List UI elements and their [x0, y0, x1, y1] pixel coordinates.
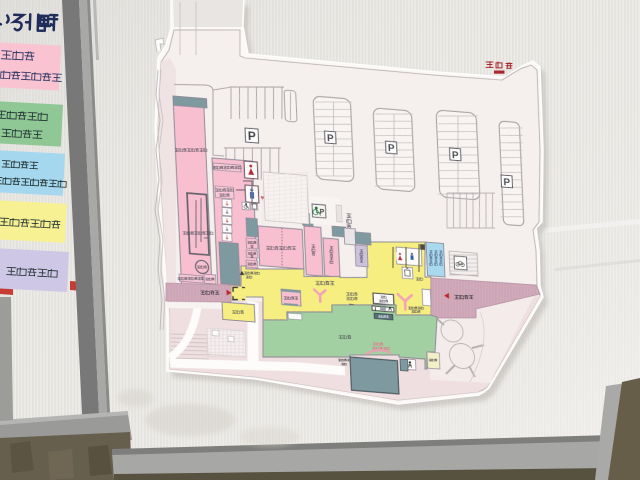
svg-text:P: P: [388, 143, 395, 155]
svg-text:P: P: [248, 129, 257, 144]
svg-text:P: P: [452, 150, 459, 162]
svg-text:P: P: [320, 209, 325, 216]
svg-text:P: P: [327, 133, 334, 145]
svg-text:P: P: [503, 177, 510, 189]
